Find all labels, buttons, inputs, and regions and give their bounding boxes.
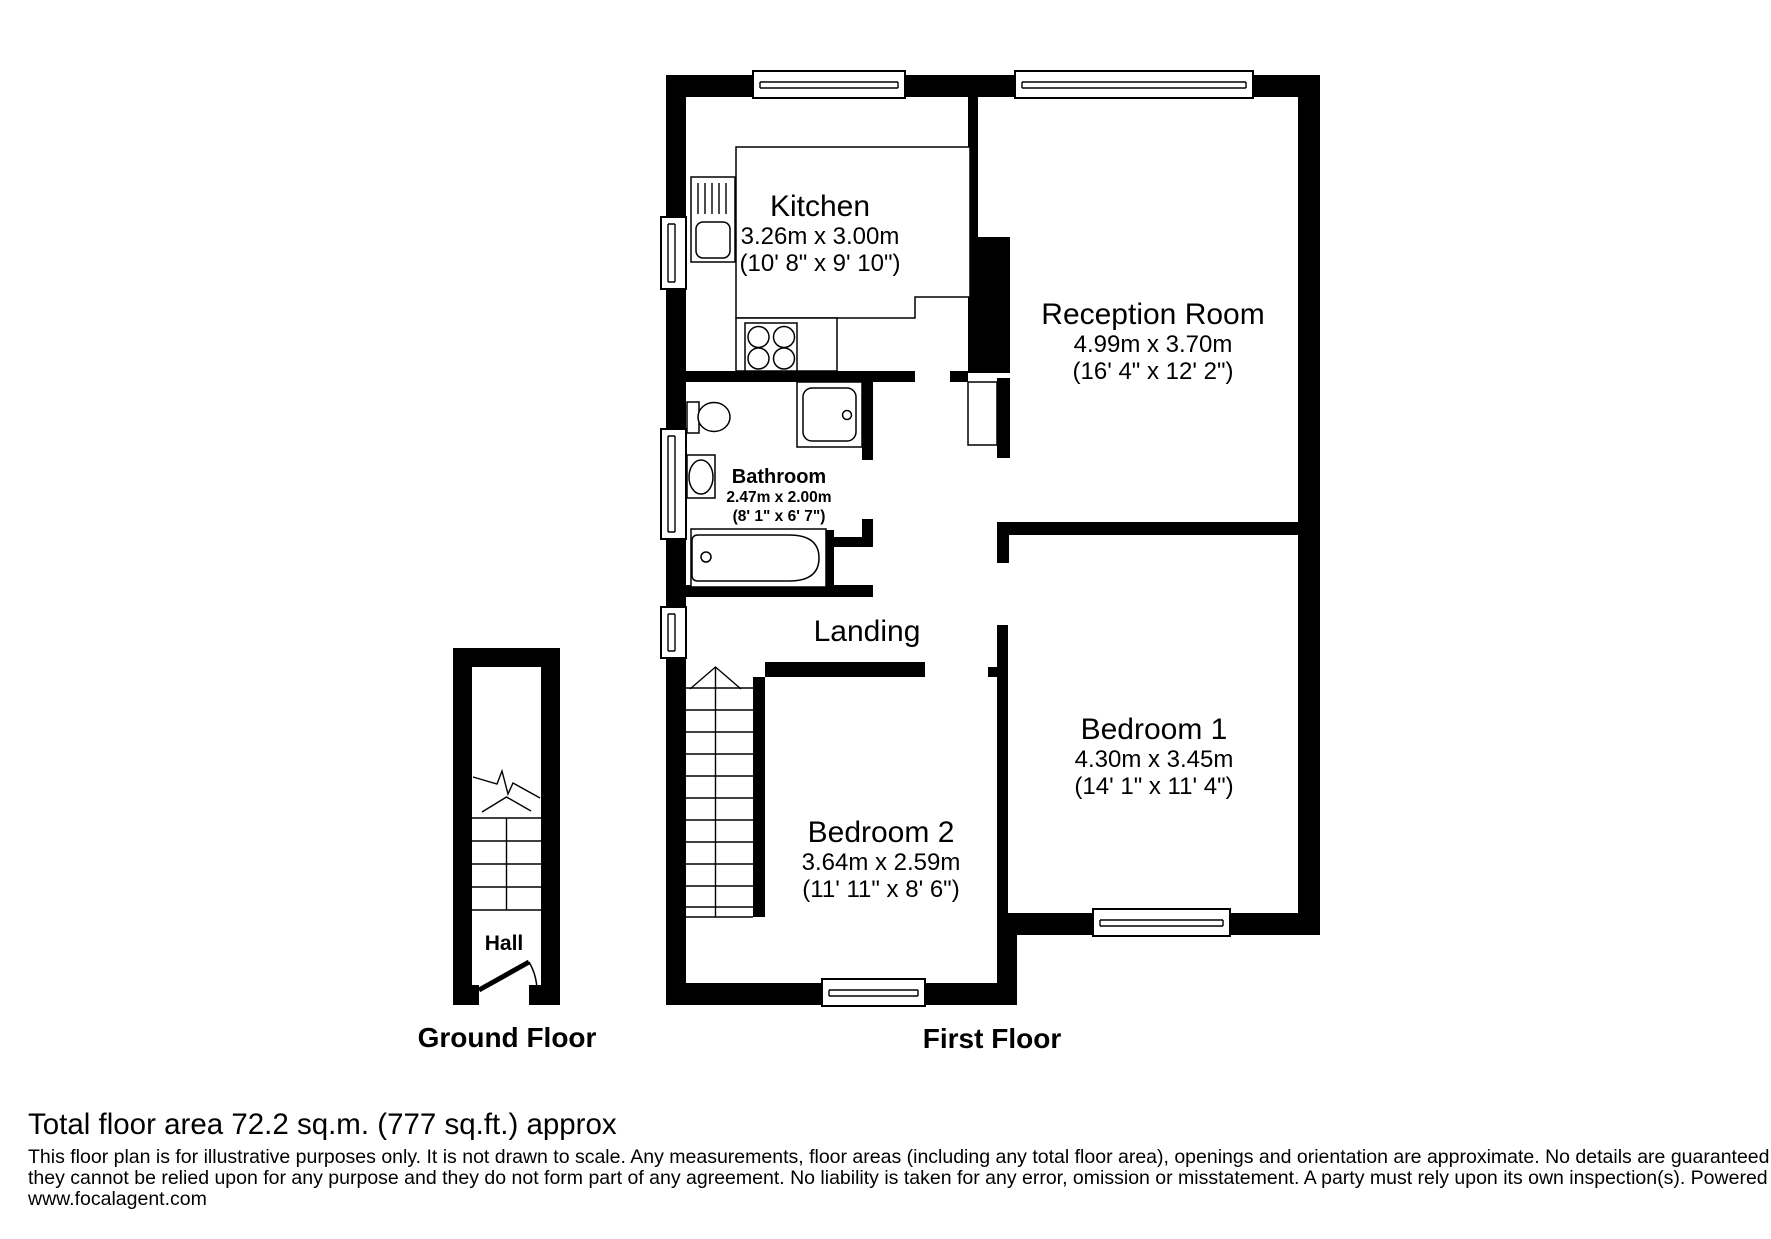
- ground-floor-label: Ground Floor: [418, 1022, 597, 1054]
- room-name: Bedroom 1: [1074, 713, 1233, 746]
- room-label-bedroom1: Bedroom 1 4.30m x 3.45m (14' 1" x 11' 4"…: [1074, 713, 1233, 800]
- toilet-icon: [687, 402, 730, 433]
- kitchen-hob-icon: [745, 323, 797, 371]
- floorplan: Kitchen 3.26m x 3.00m (10' 8" x 9' 10") …: [0, 0, 1771, 1239]
- staircase-first-floor: [686, 667, 753, 917]
- window-icon: [661, 217, 686, 289]
- room-dim-imperial: (10' 8" x 9' 10"): [740, 250, 901, 277]
- window-icon: [822, 979, 925, 1006]
- room-dim-metric: 2.47m x 2.00m: [726, 488, 831, 507]
- room-dim-imperial: (14' 1" x 11' 4"): [1074, 773, 1233, 800]
- disclaimer-line: This floor plan is for illustrative purp…: [28, 1147, 1771, 1168]
- window-icon: [661, 607, 686, 658]
- bath-icon: [691, 529, 826, 587]
- kitchen-sink-icon: [691, 177, 735, 262]
- room-dim-imperial: (8' 1" x 6' 7"): [726, 507, 831, 526]
- total-floor-area: Total floor area 72.2 sq.m. (777 sq.ft.)…: [28, 1108, 617, 1142]
- window-icon: [753, 71, 905, 98]
- window-icon: [661, 429, 686, 539]
- room-name: Landing: [814, 615, 921, 648]
- staircase-ground-floor: [472, 771, 541, 910]
- window-icon: [1093, 909, 1230, 936]
- room-dim-metric: 4.30m x 3.45m: [1074, 746, 1233, 773]
- basin-icon: [687, 455, 715, 498]
- room-name: Bedroom 2: [802, 816, 961, 849]
- room-dim-metric: 4.99m x 3.70m: [1041, 331, 1264, 358]
- room-name: Kitchen: [740, 190, 901, 223]
- room-label-hall: Hall: [485, 933, 524, 955]
- room-label-bedroom2: Bedroom 2 3.64m x 2.59m (11' 11" x 8' 6"…: [802, 816, 961, 903]
- room-name: Hall: [485, 933, 524, 955]
- stairs-up-arrow-icon: [482, 797, 531, 812]
- room-name: Bathroom: [726, 466, 831, 488]
- room-name: Reception Room: [1041, 298, 1264, 331]
- stairs-break-line: [473, 771, 540, 798]
- chimney-alcove: [968, 382, 997, 445]
- first-floor-label: First Floor: [923, 1023, 1061, 1055]
- room-dim-metric: 3.64m x 2.59m: [802, 849, 961, 876]
- room-label-reception: Reception Room 4.99m x 3.70m (16' 4" x 1…: [1041, 298, 1264, 385]
- disclaimer: This floor plan is for illustrative purp…: [28, 1147, 1771, 1210]
- entrance-door-swing-icon: [479, 962, 537, 990]
- room-dim-imperial: (11' 11" x 8' 6"): [802, 876, 961, 903]
- disclaimer-line: they cannot be relied upon for any purpo…: [28, 1168, 1771, 1189]
- window-icon: [1015, 71, 1253, 98]
- room-dim-metric: 3.26m x 3.00m: [740, 223, 901, 250]
- room-label-bathroom: Bathroom 2.47m x 2.00m (8' 1" x 6' 7"): [726, 466, 831, 526]
- room-label-kitchen: Kitchen 3.26m x 3.00m (10' 8" x 9' 10"): [740, 190, 901, 277]
- room-dim-imperial: (16' 4" x 12' 2"): [1041, 358, 1264, 385]
- disclaimer-line: www.focalagent.com: [28, 1189, 1771, 1210]
- room-label-landing: Landing: [814, 615, 921, 648]
- shower-icon: [797, 382, 862, 447]
